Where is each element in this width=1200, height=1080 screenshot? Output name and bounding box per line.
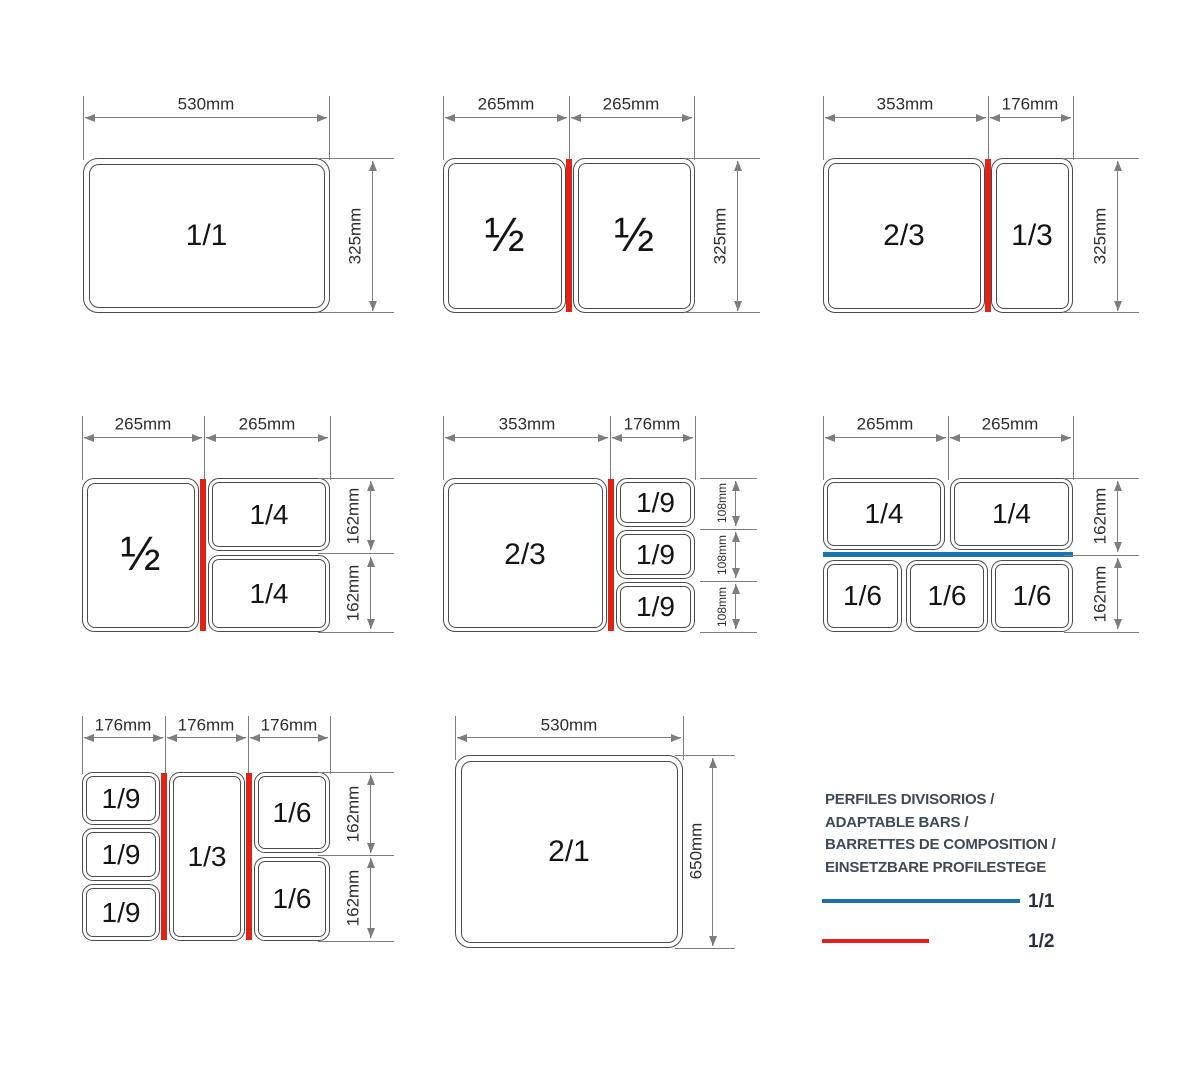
dim-label: 325mm: [712, 208, 729, 265]
pan-1-6: 1/6: [906, 560, 988, 632]
extension-line: [1073, 96, 1074, 160]
dim-label: 162mm: [345, 870, 362, 927]
extension-line: [1064, 555, 1139, 556]
extension-line: [948, 416, 949, 480]
extension-line: [694, 96, 695, 160]
pan-label: 1/9: [636, 541, 675, 569]
extension-line: [318, 478, 394, 479]
pan-label: 1/4: [250, 501, 289, 529]
extension-line: [318, 158, 394, 159]
pan-label: 2/3: [883, 221, 925, 251]
divider-bar-red: [566, 159, 572, 312]
pan-1-9: 1/9: [616, 478, 695, 527]
dimension-line: [84, 737, 163, 738]
pan-1-1: 1/1: [83, 158, 330, 313]
extension-line: [700, 581, 757, 582]
dim-label: 176mm: [624, 416, 681, 433]
pan-2-3: 2/3: [823, 158, 985, 313]
pan-label: 1/6: [273, 885, 312, 913]
pan-label: 1/9: [102, 899, 141, 927]
pan-label: 1/6: [1013, 582, 1052, 610]
pan-1-6: 1/6: [991, 560, 1073, 632]
divider-bar-red: [608, 479, 614, 631]
pan-label: 1/9: [636, 593, 675, 621]
pan-label: 1/3: [1011, 221, 1053, 251]
dimension-line: [735, 584, 736, 629]
extension-line: [686, 312, 760, 313]
pan-2-1: 2/1: [455, 755, 683, 948]
dimension-line: [445, 117, 567, 118]
extension-line: [1064, 478, 1139, 479]
extension-line: [1064, 158, 1139, 159]
dim-label: 162mm: [345, 565, 362, 622]
pan-label: 1/9: [636, 489, 675, 517]
extension-line: [82, 716, 83, 774]
divider-bar-blue: [823, 552, 1073, 557]
legend-title-line: PERFILES DIVISORIOS /: [825, 789, 1056, 812]
dim-label: 265mm: [239, 416, 296, 433]
pan-1-2: ½: [573, 158, 695, 313]
dimension-line: [1117, 558, 1118, 629]
dim-label: 265mm: [982, 416, 1039, 433]
dim-label: 176mm: [261, 717, 318, 734]
divider-bar-red: [246, 773, 252, 940]
extension-line: [318, 632, 394, 633]
pan-1-9: 1/9: [82, 772, 160, 825]
extension-line: [318, 772, 394, 773]
dimension-line: [825, 117, 986, 118]
dim-label: 530mm: [541, 717, 598, 734]
dim-label: 108mm: [716, 587, 728, 627]
dim-label: 530mm: [178, 96, 235, 113]
extension-line: [318, 941, 394, 942]
dimension-line: [735, 481, 736, 526]
legend-title-line: ADAPTABLE BARS /: [825, 812, 1056, 835]
divider-bar-red: [200, 479, 206, 631]
dim-label: 265mm: [857, 416, 914, 433]
pan-1-9: 1/9: [82, 884, 160, 941]
gn-size-diagram: 530mm 1/1 325mm 265mm 265mm ½ ½ 325mm: [0, 0, 1200, 1080]
pan-1-9: 1/9: [616, 530, 695, 579]
extension-line: [204, 416, 205, 480]
extension-line: [443, 96, 444, 160]
pan-2-3: 2/3: [443, 478, 607, 632]
dimension-line: [990, 117, 1071, 118]
pan-label: ½: [120, 531, 160, 579]
extension-line: [82, 416, 83, 480]
dim-label: 108mm: [716, 535, 728, 575]
dimension-line: [950, 437, 1071, 438]
pan-1-3: 1/3: [991, 158, 1073, 313]
pan-1-4: 1/4: [208, 555, 330, 632]
pan-label: 1/4: [865, 500, 904, 528]
dim-label: 353mm: [877, 96, 934, 113]
extension-line: [823, 416, 824, 480]
pan-label: 1/6: [928, 582, 967, 610]
extension-line: [443, 416, 444, 480]
extension-line: [330, 416, 331, 480]
extension-line: [610, 416, 611, 480]
dim-label: 265mm: [115, 416, 172, 433]
extension-line: [455, 716, 456, 760]
dimension-line: [85, 117, 327, 118]
extension-line: [700, 632, 757, 633]
dim-label: 162mm: [1092, 566, 1109, 623]
pan-label: 2/3: [504, 540, 546, 570]
extension-line: [988, 96, 989, 160]
pan-1-4: 1/4: [950, 478, 1073, 550]
dim-label: 162mm: [345, 488, 362, 545]
dim-label: 176mm: [1002, 96, 1059, 113]
pan-1-3: 1/3: [169, 772, 245, 941]
extension-line: [83, 96, 84, 160]
pan-label: ½: [614, 212, 654, 260]
dimension-line: [84, 437, 202, 438]
pan-1-6: 1/6: [254, 857, 330, 941]
dimension-line: [712, 758, 713, 946]
dim-label: 353mm: [499, 416, 556, 433]
dimension-line: [370, 481, 371, 550]
pan-1-9: 1/9: [616, 582, 695, 632]
extension-line: [569, 96, 570, 160]
pan-label: 1/1: [186, 221, 228, 251]
dimension-line: [370, 775, 371, 853]
dimension-line: [1117, 481, 1118, 552]
legend-label-1-1: 1/1: [1028, 892, 1054, 911]
extension-line: [823, 96, 824, 160]
dimension-line: [612, 437, 693, 438]
pan-1-2: ½: [443, 158, 566, 313]
pan-label: 1/9: [102, 785, 141, 813]
extension-line: [675, 755, 735, 756]
pan-1-4: 1/4: [823, 478, 945, 550]
dim-label: 650mm: [688, 823, 705, 880]
pan-label: 1/4: [250, 580, 289, 608]
pan-label: ½: [484, 212, 524, 260]
dimension-line: [1117, 161, 1118, 311]
dimension-line: [370, 557, 371, 629]
pan-1-6: 1/6: [823, 560, 902, 632]
dimension-line: [571, 117, 692, 118]
pan-label: 1/6: [843, 582, 882, 610]
dim-label: 108mm: [716, 483, 728, 523]
legend-line-1-1: [822, 899, 1020, 903]
dimension-line: [167, 737, 246, 738]
extension-line: [700, 478, 757, 479]
dimension-line: [445, 437, 608, 438]
pan-label: 1/4: [992, 500, 1031, 528]
extension-line: [248, 716, 249, 774]
dimension-line: [370, 858, 371, 938]
extension-line: [318, 855, 394, 856]
dim-label: 265mm: [603, 96, 660, 113]
extension-line: [700, 529, 757, 530]
dimension-line: [250, 737, 328, 738]
legend-line-1-2: [822, 939, 929, 943]
extension-line: [330, 716, 331, 774]
pan-1-2: ½: [82, 478, 199, 632]
extension-line: [683, 716, 684, 760]
dim-label: 325mm: [1092, 208, 1109, 265]
extension-line: [686, 158, 760, 159]
dimension-line: [457, 737, 681, 738]
dim-label: 265mm: [478, 96, 535, 113]
dimension-line: [825, 437, 946, 438]
pan-1-9: 1/9: [82, 828, 160, 881]
divider-bar-red: [161, 773, 167, 940]
pan-label: 1/9: [102, 841, 141, 869]
legend-label-1-2: 1/2: [1028, 932, 1054, 951]
extension-line: [1064, 632, 1139, 633]
extension-line: [695, 416, 696, 480]
dimension-line: [372, 161, 373, 311]
extension-line: [329, 96, 330, 160]
extension-line: [318, 553, 394, 554]
legend-title-line: EINSETZBARE PROFILESTEGE: [825, 857, 1056, 880]
legend-title-line: BARRETTES DE COMPOSITION /: [825, 834, 1056, 857]
extension-line: [165, 716, 166, 774]
dimension-line: [735, 532, 736, 578]
pan-label: 1/6: [273, 799, 312, 827]
extension-line: [318, 312, 394, 313]
dim-label: 176mm: [178, 717, 235, 734]
dim-label: 176mm: [95, 717, 152, 734]
extension-line: [675, 948, 735, 949]
dimension-line: [206, 437, 328, 438]
legend: PERFILES DIVISORIOS / ADAPTABLE BARS / B…: [825, 789, 1056, 879]
pan-1-4: 1/4: [208, 478, 330, 551]
extension-line: [1064, 312, 1139, 313]
dim-label: 325mm: [347, 208, 364, 265]
extension-line: [1073, 416, 1074, 480]
dim-label: 162mm: [1092, 488, 1109, 545]
pan-label: 2/1: [548, 837, 590, 867]
pan-label: 1/3: [188, 843, 227, 871]
pan-1-6: 1/6: [254, 772, 330, 853]
dimension-line: [737, 161, 738, 311]
dim-label: 162mm: [345, 786, 362, 843]
